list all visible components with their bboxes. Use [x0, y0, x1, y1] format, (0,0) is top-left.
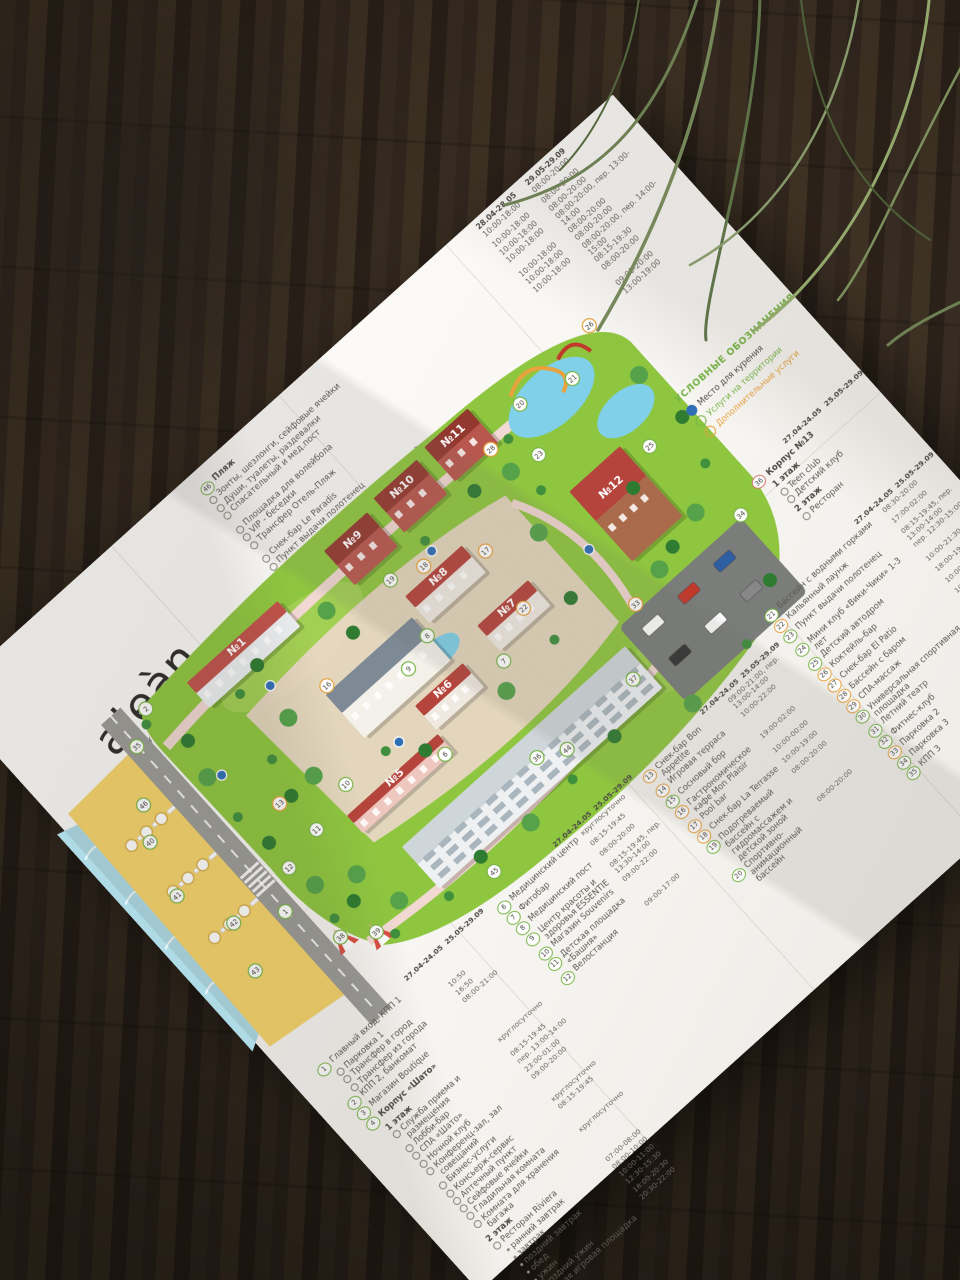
legend-ring-icon: [391, 1128, 402, 1139]
legend-ring-icon: [249, 540, 260, 551]
bullet-icon: [513, 1255, 517, 1259]
legend-ring-icon: [472, 1218, 483, 1229]
legend-ring-icon: [786, 493, 797, 504]
legend-ring-icon: [492, 1240, 503, 1251]
bullet-icon: [520, 1262, 524, 1266]
bullet-icon: [526, 1270, 530, 1274]
bullet-icon: [506, 1247, 510, 1251]
legend-ring-icon: [425, 1166, 436, 1177]
legend-ring-icon: [222, 510, 233, 521]
photo-scene: { "logo":{"brand":"aleàn","tagline":"FAM…: [0, 0, 960, 1280]
legend-ring-icon: [801, 511, 812, 522]
